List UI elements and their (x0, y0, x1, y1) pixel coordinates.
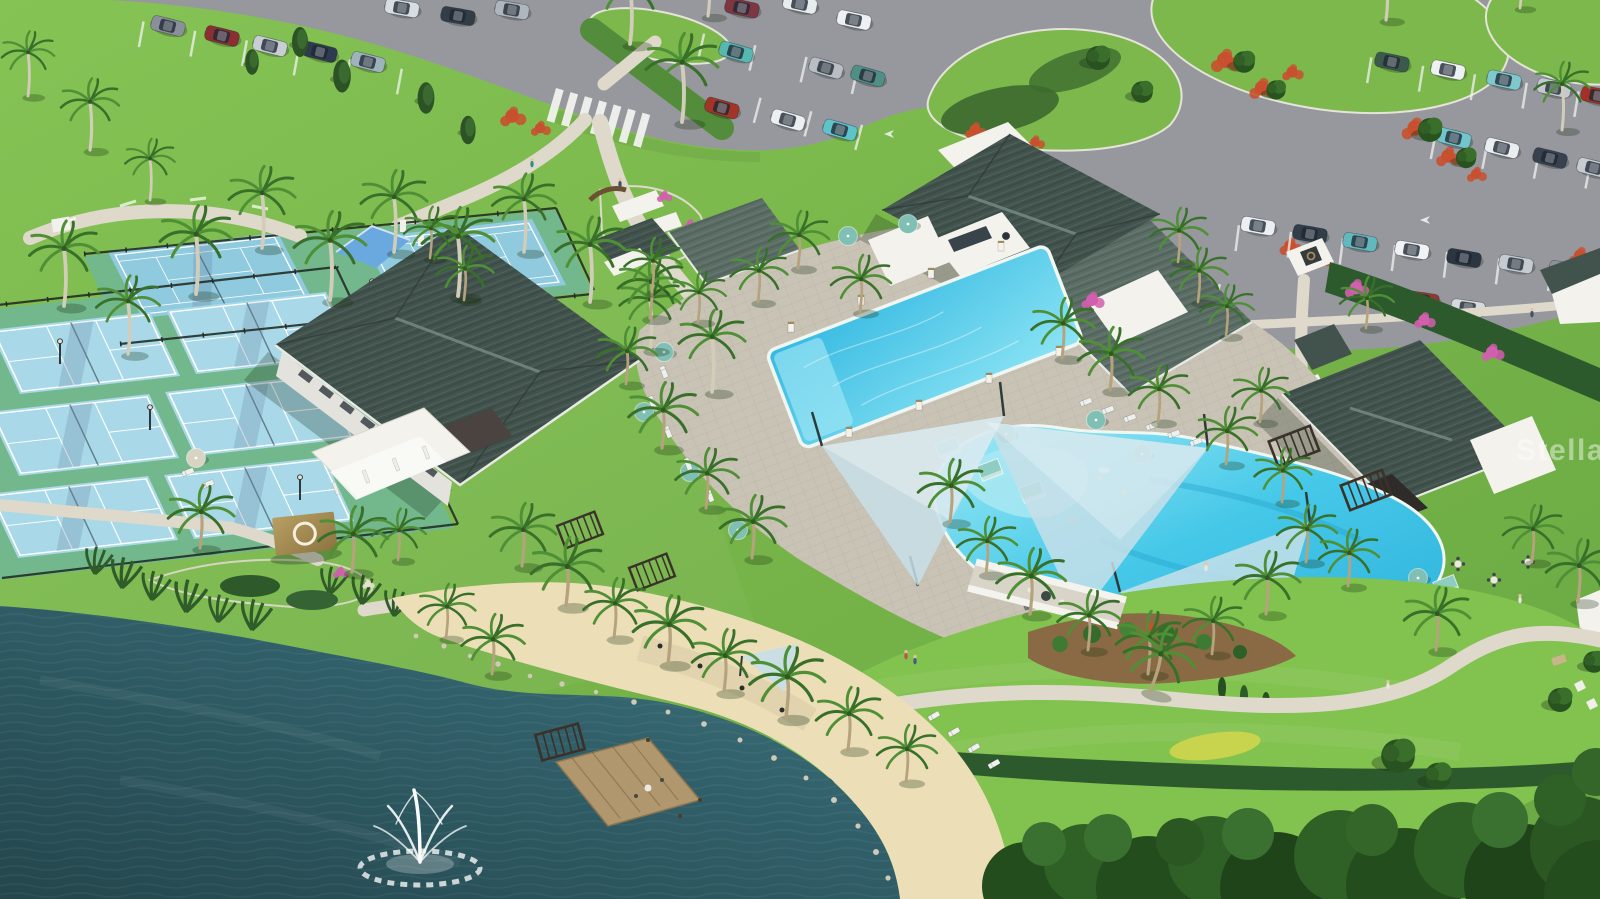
watermark-text: StellarMLS (1516, 434, 1600, 467)
aerial-rendering: StellarMLS (0, 0, 1600, 899)
rendering-canvas: StellarMLS (0, 0, 1600, 899)
porthole-window (1002, 232, 1011, 241)
